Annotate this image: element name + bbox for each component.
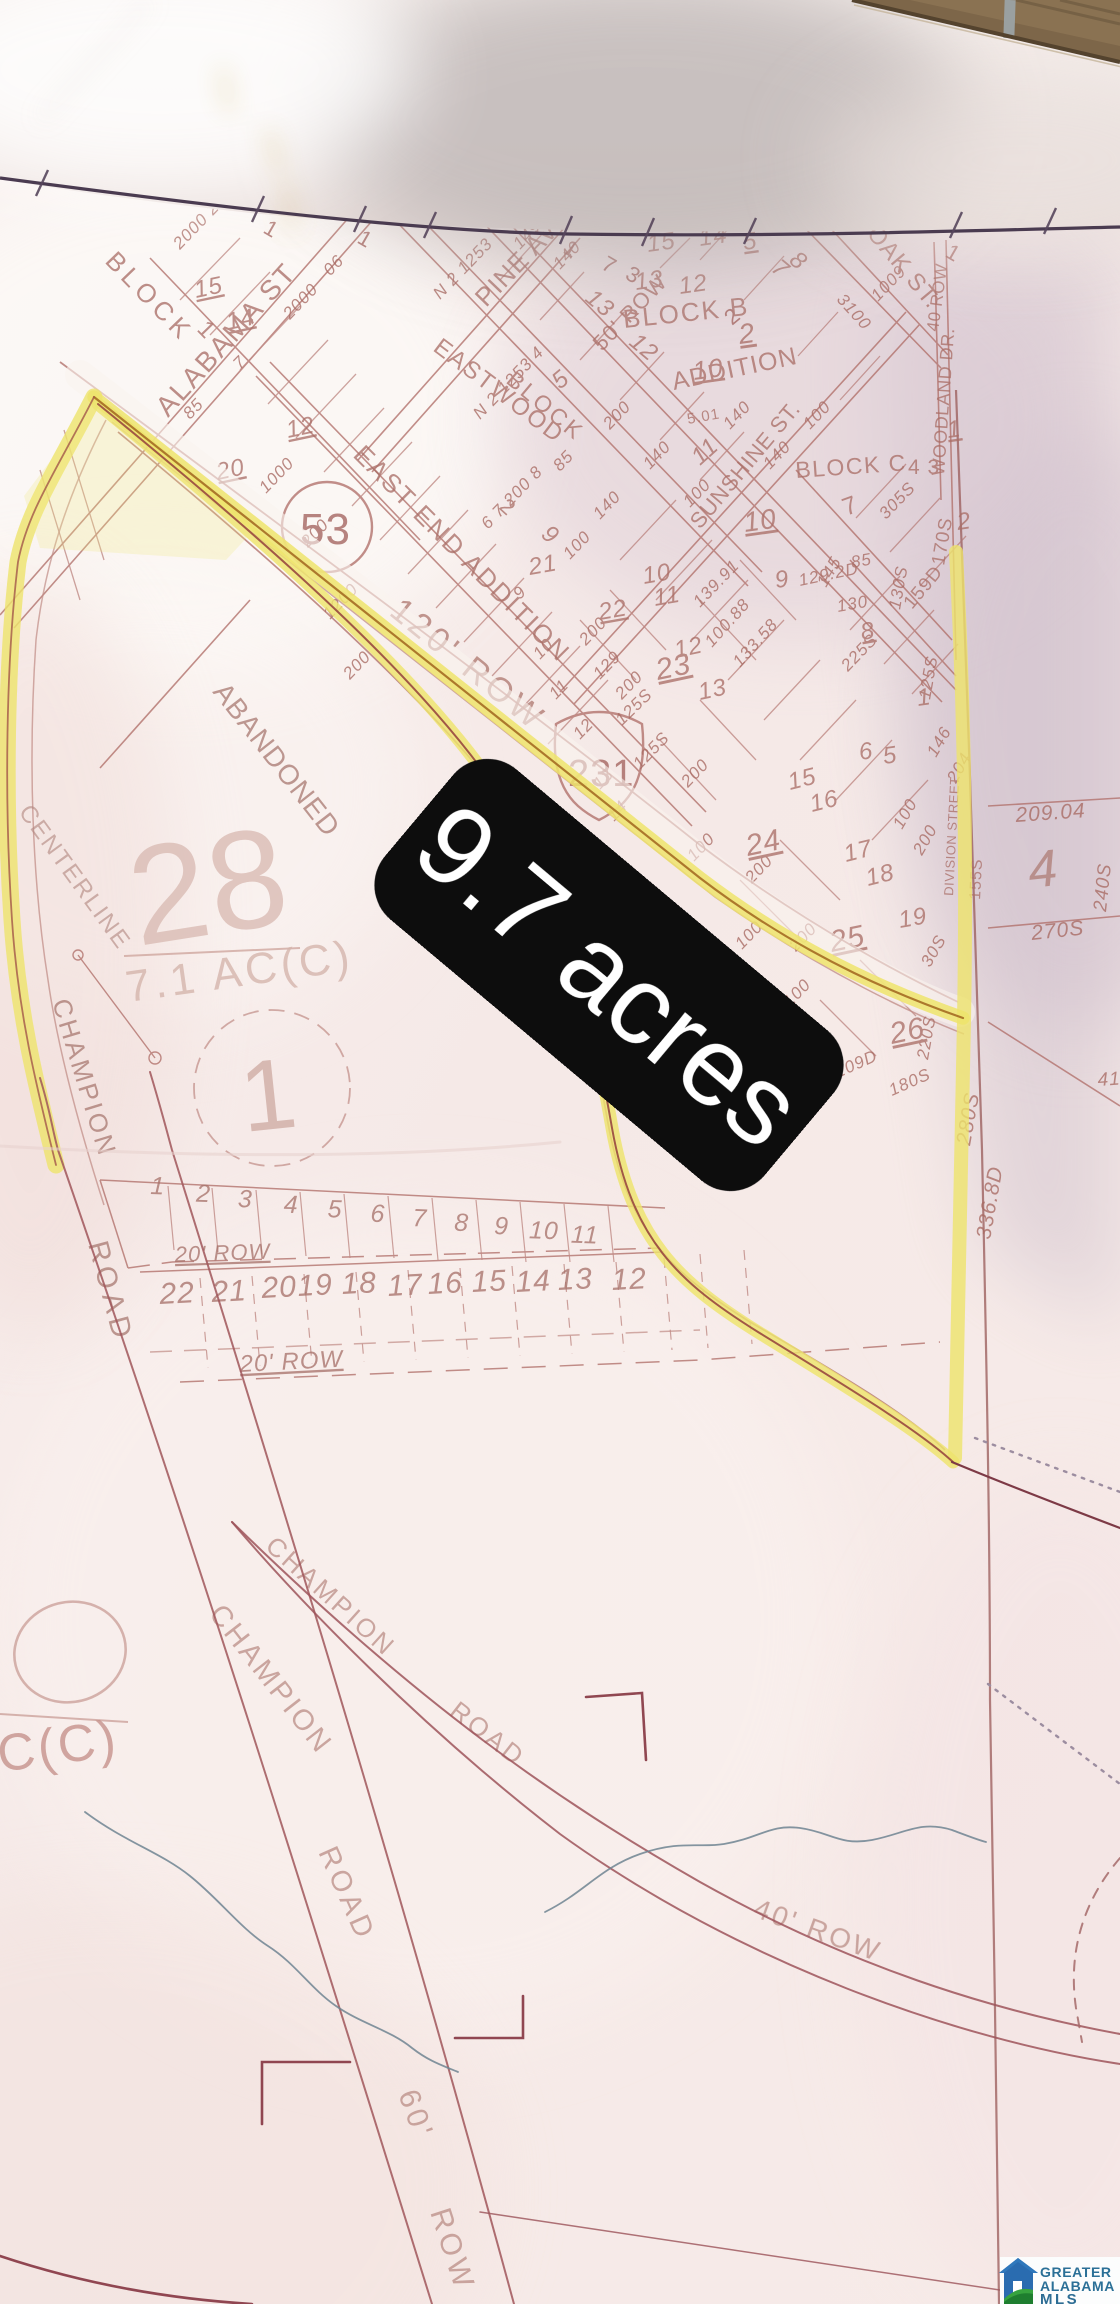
svg-text:85: 85	[849, 550, 873, 572]
svg-text:12: 12	[677, 269, 709, 300]
svg-text:6: 6	[370, 1200, 386, 1229]
svg-text:1: 1	[235, 1037, 303, 1154]
svg-text:21: 21	[525, 549, 559, 581]
svg-text:8: 8	[454, 1209, 470, 1238]
svg-text:MLS: MLS	[1040, 2291, 1079, 2304]
svg-text:5: 5	[327, 1195, 343, 1224]
svg-text:15: 15	[471, 1264, 508, 1299]
svg-text:20' ROW: 20' ROW	[173, 1239, 272, 1267]
svg-text:410: 410	[1097, 1068, 1120, 1091]
svg-text:4: 4	[1025, 839, 1061, 900]
svg-text:18: 18	[341, 1266, 378, 1301]
svg-text:11: 11	[570, 1221, 599, 1250]
svg-text:16: 16	[427, 1266, 464, 1301]
svg-text:20: 20	[260, 1270, 298, 1305]
svg-text:1: 1	[150, 1172, 166, 1201]
svg-text:22: 22	[158, 1276, 196, 1311]
svg-text:20' ROW: 20' ROW	[238, 1346, 345, 1379]
svg-text:3: 3	[237, 1185, 253, 1214]
svg-text:12: 12	[611, 1262, 648, 1297]
svg-text:19: 19	[896, 902, 929, 934]
svg-text:17: 17	[387, 1268, 424, 1303]
svg-text:10: 10	[742, 503, 779, 538]
svg-text:4: 4	[283, 1191, 299, 1220]
svg-text:11: 11	[651, 581, 682, 612]
svg-text:10: 10	[529, 1216, 560, 1245]
svg-text:13: 13	[557, 1262, 594, 1297]
svg-text:2: 2	[195, 1180, 212, 1209]
svg-text:9: 9	[494, 1212, 510, 1241]
svg-text:7: 7	[412, 1204, 428, 1233]
svg-text:10: 10	[691, 352, 726, 386]
svg-text:19: 19	[297, 1268, 334, 1303]
svg-text:14: 14	[515, 1264, 552, 1299]
